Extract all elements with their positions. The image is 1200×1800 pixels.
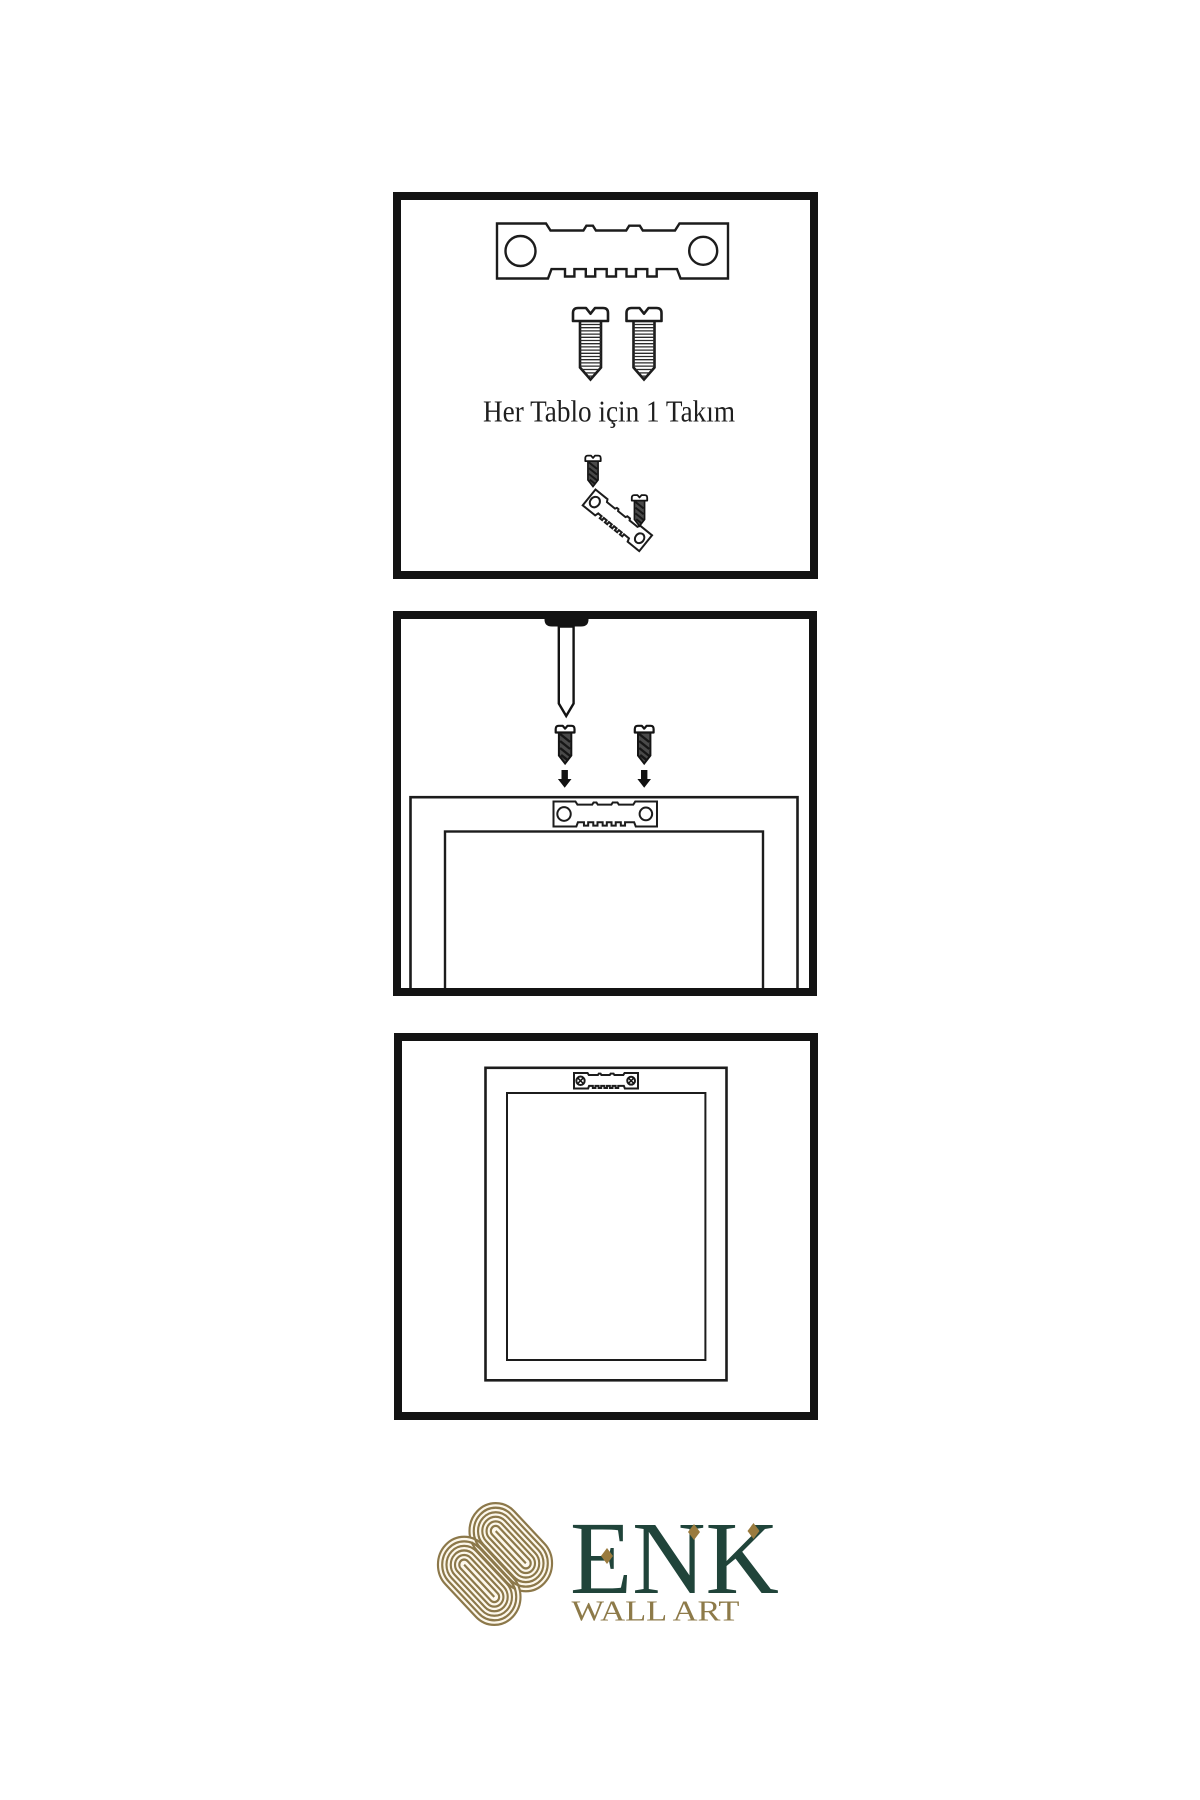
svg-text:WALL ART: WALL ART [572, 1595, 740, 1627]
svg-text:Her Tablo için 1 Takım: Her Tablo için 1 Takım [483, 395, 735, 429]
